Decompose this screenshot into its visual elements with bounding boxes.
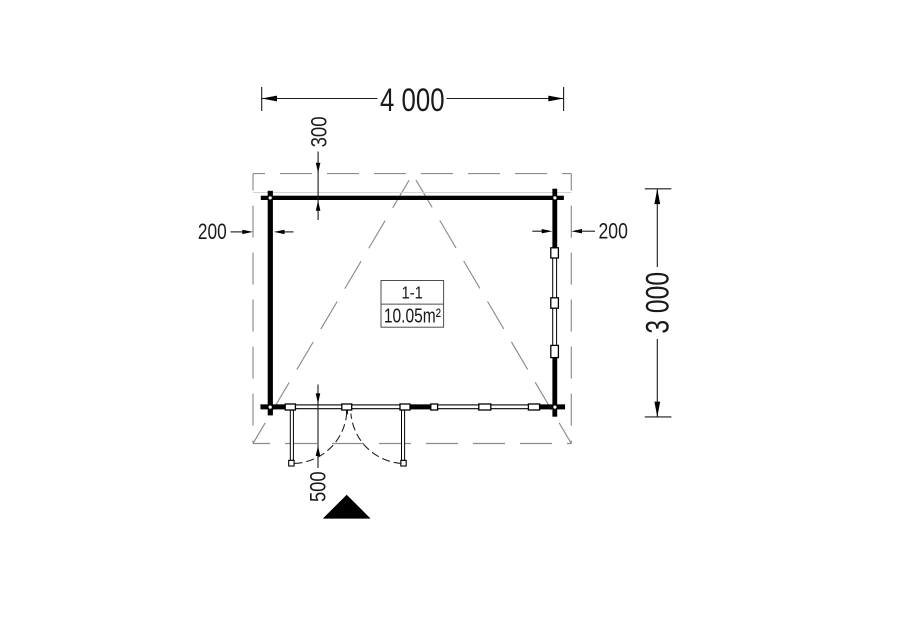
svg-text:4 000: 4 000: [380, 82, 445, 118]
svg-text:500: 500: [306, 471, 331, 502]
svg-text:200: 200: [599, 218, 628, 243]
svg-text:10.05m²: 10.05m²: [384, 306, 441, 328]
svg-text:1-1: 1-1: [402, 283, 423, 303]
svg-text:300: 300: [306, 116, 331, 147]
svg-text:200: 200: [198, 219, 227, 244]
svg-text:3 000: 3 000: [639, 272, 675, 334]
